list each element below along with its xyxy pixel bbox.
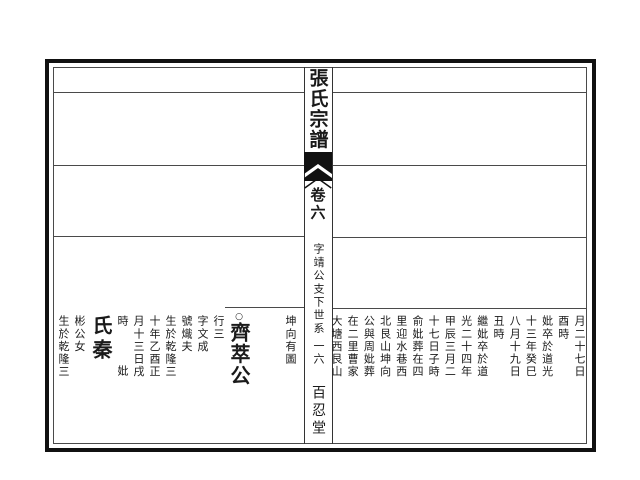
- text-column: 公與周妣葬: [360, 315, 376, 382]
- text-column: 里迎水巷西: [393, 315, 409, 382]
- entry-detail-column: 號熾夫: [178, 315, 194, 396]
- entry-time-spouse-column: 時妣: [114, 315, 130, 396]
- text-column: 八月十九日: [506, 315, 522, 382]
- book-title: 張氏宗譜: [305, 68, 332, 150]
- text-column: 十三年癸巳: [522, 315, 538, 382]
- entry-marker: ○: [234, 312, 244, 322]
- fishtail-ornament-icon: [304, 152, 332, 190]
- entry-detail-column: 字文成: [194, 315, 210, 396]
- hall-name: 百忍堂: [308, 385, 328, 438]
- entry-detail-column: 生於乾隆三: [162, 315, 178, 396]
- left-page-entry-block: 坤向有圖 ○齊萃公 行三字文成號熾夫生於乾隆三十年乙酉正月十三日戌 時妣 氏秦 …: [55, 312, 298, 396]
- text-column: 在二里曹家: [344, 315, 360, 382]
- row-divider: [54, 236, 304, 237]
- ancestor-name-column: ○齊萃公: [226, 312, 252, 396]
- volume-label: 卷六: [308, 187, 329, 222]
- spouse-name-column: 氏秦: [87, 315, 114, 396]
- text-column: 十七日子時: [425, 315, 441, 382]
- spouse-label: 妣: [116, 365, 129, 378]
- right-page-text-block: 月二十七日酉時妣卒於道光十三年癸巳八月十九日丑時繼妣卒於道光二十四年甲辰三月二十…: [328, 312, 587, 382]
- entry-row-divider: [225, 307, 304, 308]
- row-divider: [54, 92, 304, 93]
- spouse-detail-column: 生於乾隆三: [55, 315, 71, 396]
- row-divider: [333, 92, 586, 93]
- entry-detail-column: 月十三日戌: [130, 315, 146, 396]
- text-column: 北艮山坤向: [376, 315, 392, 382]
- spine-border-right: [332, 67, 333, 444]
- note-column: 坤向有圖: [282, 315, 298, 396]
- text-column: 大塘西艮山: [328, 315, 344, 382]
- row-divider: [333, 308, 586, 309]
- row-divider: [333, 237, 586, 238]
- page-number: 一六: [310, 340, 326, 366]
- text-column: 繼妣卒於道: [474, 315, 490, 382]
- row-divider: [333, 165, 586, 166]
- text-column: 光二十四年: [457, 315, 473, 382]
- section-title: 字靖公支下世系: [310, 243, 326, 335]
- text-column: 俞妣葬在四: [409, 315, 425, 382]
- text-column: 甲辰三月二: [441, 315, 457, 382]
- text-column: 妣卒於道光: [538, 315, 554, 382]
- text-column: 酉時: [555, 315, 571, 382]
- entry-detail-column: 十年乙酉正: [146, 315, 162, 396]
- text-column: 丑時: [490, 315, 506, 382]
- spouse-detail-column: 彬公女: [71, 315, 87, 396]
- genealogy-page-scan: 張氏宗譜 卷六 字靖公支下世系 一六 百忍堂 坤向有圖 ○齊萃公 行三字文成號熾…: [0, 0, 640, 480]
- row-divider: [54, 165, 304, 166]
- ancestor-name: 齊萃公: [227, 322, 251, 387]
- text-column: 月二十七日: [571, 315, 587, 382]
- entry-detail-column: 行三: [210, 315, 226, 396]
- time-char: 時: [116, 315, 129, 328]
